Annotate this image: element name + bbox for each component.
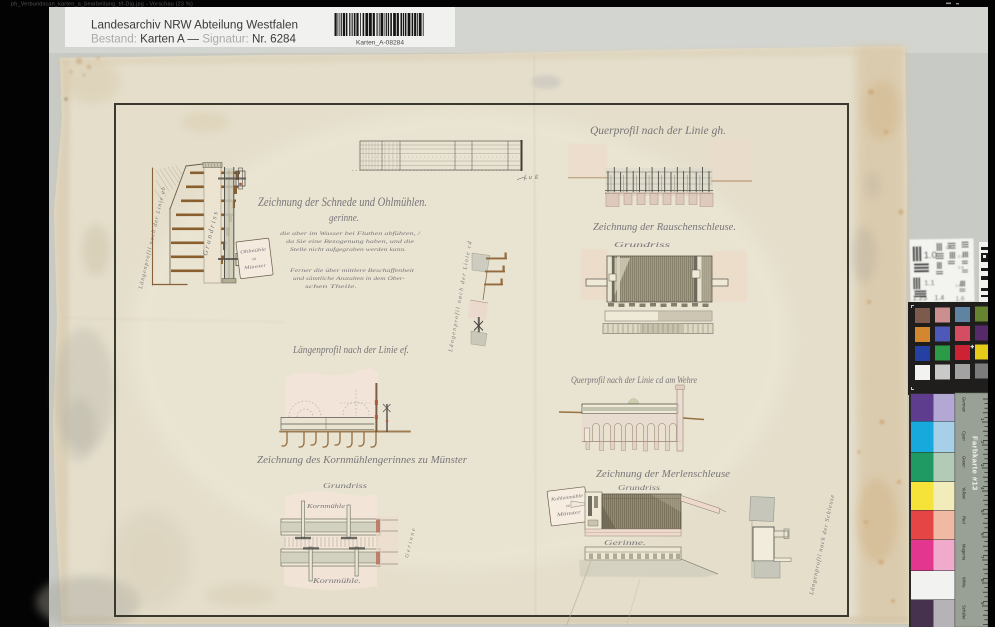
svg-text:ph_Verbundscan_karten_a_bearbe: ph_Verbundscan_karten_a_bearbeitung_tif-… xyxy=(11,2,193,8)
svg-text:Green: Green xyxy=(962,456,967,468)
svg-text:Zeichnung der Rauschenschleuse: Zeichnung der Rauschenschleuse. xyxy=(593,221,736,233)
svg-text:Yellow: Yellow xyxy=(962,487,967,500)
svg-text:Grundriss: Grundriss xyxy=(323,481,367,490)
svg-text:Querprofil nach der Linie cd a: Querprofil nach der Linie cd am Wehre xyxy=(571,375,697,386)
svg-text:1.6: 1.6 xyxy=(955,296,965,303)
svg-text:Cyan: Cyan xyxy=(962,431,967,441)
svg-text:Gerinne.: Gerinne. xyxy=(604,538,646,547)
svg-text:Bestand: Karten A — Signatur: Bestand: Karten A — Signatur: Nr. 6284 xyxy=(91,32,296,46)
svg-text:und sämtliche Anstalten in dem: und sämtliche Anstalten in dem Ober- xyxy=(293,276,405,282)
svg-text:Stelle nicht aufgegraben werde: Stelle nicht aufgegraben werden kann. xyxy=(290,246,406,253)
svg-text:Kornmühle.: Kornmühle. xyxy=(312,577,362,585)
svg-text:German: German xyxy=(962,397,967,413)
svg-text:Grundriss: Grundriss xyxy=(618,484,660,492)
svg-text:Ferner die über mittlere Besch: Ferner die über mittlere Beschaffenheit xyxy=(289,267,415,274)
svg-text:Zeichnung des Kornmühlengerinn: Zeichnung des Kornmühlengerinnes zu Müns… xyxy=(257,455,468,466)
svg-text:Zeichnung der Merlenschleuse: Zeichnung der Merlenschleuse xyxy=(596,469,730,480)
svg-text:Querprofil nach der Linie gh.: Querprofil nach der Linie gh. xyxy=(590,123,726,137)
svg-text:1.0: 1.0 xyxy=(924,250,937,261)
svg-text:Grundriss: Grundriss xyxy=(614,240,670,249)
svg-text:Kornmühle: Kornmühle xyxy=(306,503,345,510)
svg-text:Längenprofil nach der Linie ef: Längenprofil nach der Linie ef. xyxy=(292,345,409,356)
svg-text:1.25: 1.25 xyxy=(912,293,927,302)
svg-text:1.4: 1.4 xyxy=(934,295,944,302)
svg-text:White: White xyxy=(962,577,967,588)
svg-text:gerinne.: gerinne. xyxy=(329,213,359,224)
svg-text:2.8: 2.8 xyxy=(958,265,964,270)
svg-text:schen Theile.: schen Theile. xyxy=(305,284,357,290)
svg-text:da Sie eine Bezogenung haben,: da Sie eine Bezogenung haben, und die xyxy=(286,239,415,245)
svg-text:1.8: 1.8 xyxy=(955,283,961,288)
svg-text:Karten_A-08284: Karten_A-08284 xyxy=(356,40,404,47)
svg-text:Red: Red xyxy=(962,516,967,524)
svg-text:1.1: 1.1 xyxy=(924,278,935,287)
svg-text:die aber im Wasser bei Fluthen: die aber im Wasser bei Fluthen abführen,… xyxy=(280,230,421,237)
svg-text:2.2: 2.2 xyxy=(958,254,964,259)
svg-text:Zeichnung der Schnede und Ohlm: Zeichnung der Schnede und Ohlmühlen. xyxy=(258,194,427,209)
svg-text:Landesarchiv NRW Abteilung Wes: Landesarchiv NRW Abteilung Westfalen xyxy=(91,18,298,32)
svg-text:Schäfer: Schäfer xyxy=(962,605,967,620)
svg-text:Magenta: Magenta xyxy=(962,544,967,561)
svg-text:Farbkarte #13: Farbkarte #13 xyxy=(971,436,980,491)
svg-text:1.5: 1.5 xyxy=(946,245,952,250)
